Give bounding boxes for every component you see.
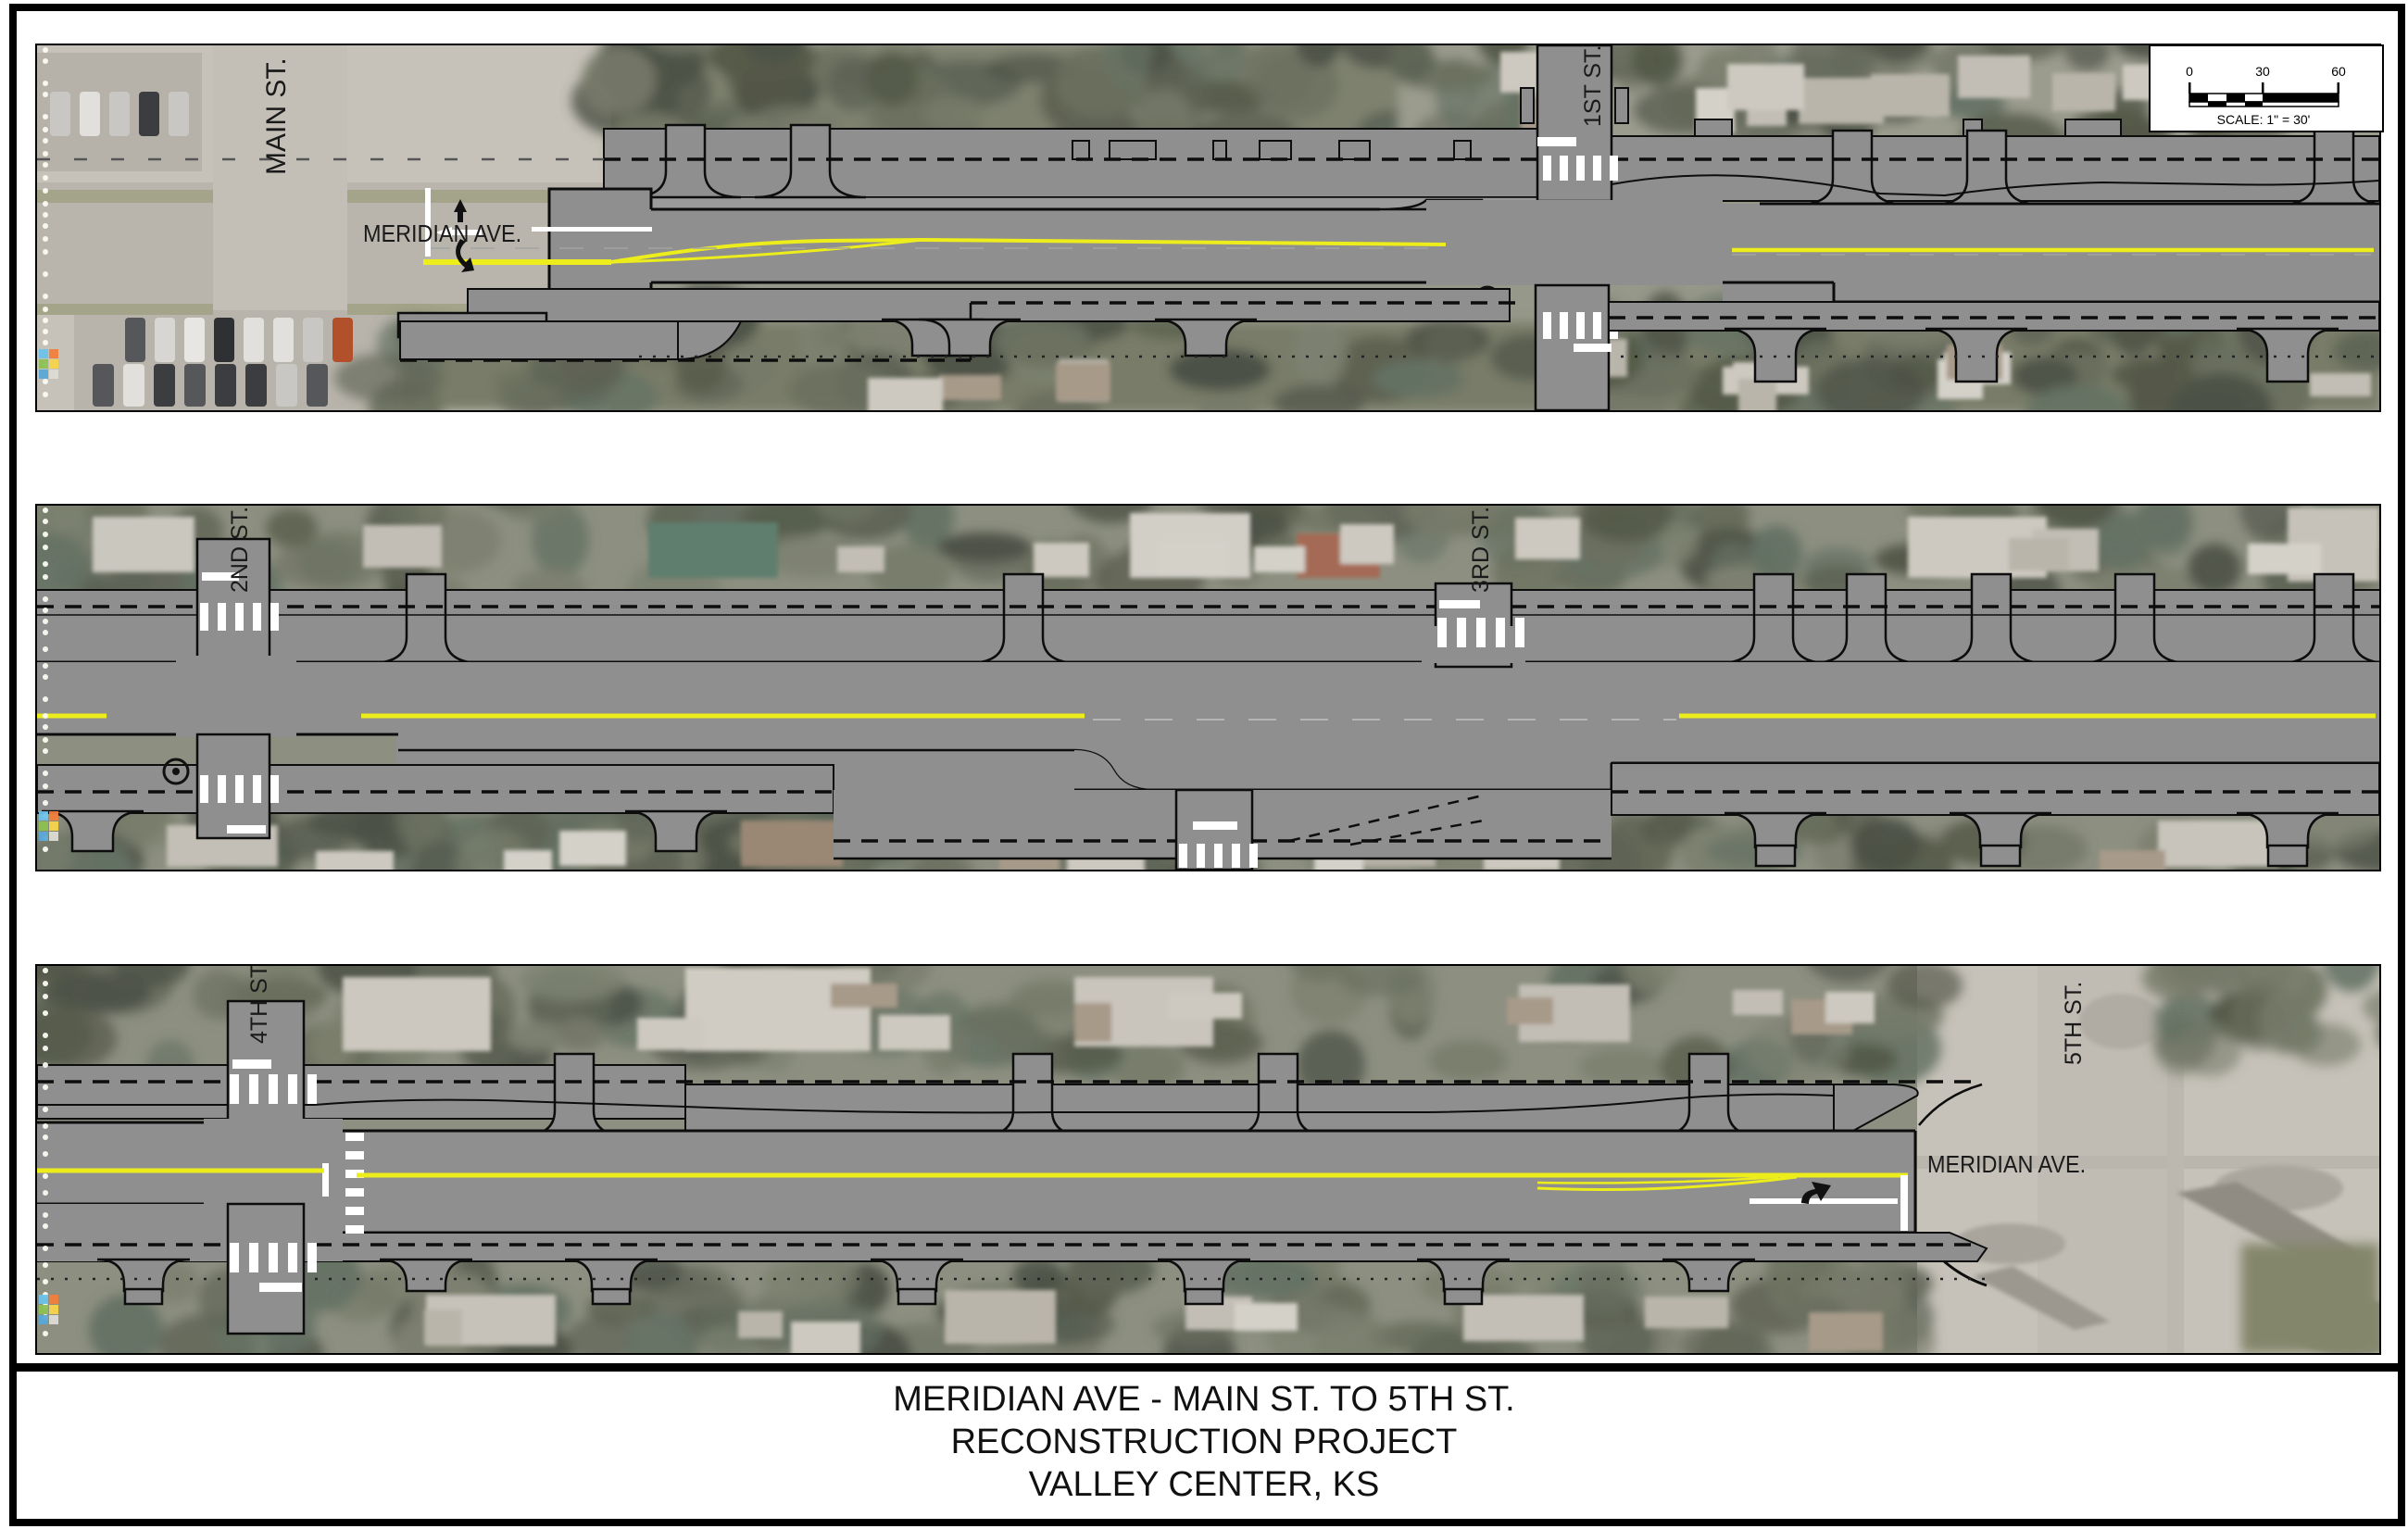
svg-text:1ST ST.: 1ST ST.	[1580, 45, 1606, 127]
svg-text:MAIN ST.: MAIN ST.	[261, 57, 292, 175]
svg-text:0: 0	[2186, 64, 2193, 79]
svg-text:30: 30	[2255, 64, 2270, 79]
svg-text:MERIDIAN AVE.: MERIDIAN AVE.	[363, 221, 521, 247]
svg-text:5TH ST.: 5TH ST.	[2061, 982, 2087, 1065]
svg-text:3RD ST.: 3RD ST.	[1468, 507, 1494, 593]
svg-text:4TH ST.: 4TH ST.	[246, 966, 272, 1044]
svg-text:60: 60	[2331, 64, 2346, 79]
svg-text:SCALE: 1" = 30': SCALE: 1" = 30'	[2217, 112, 2311, 127]
svg-text:2ND ST.: 2ND ST.	[227, 507, 253, 593]
svg-text:MERIDIAN AVE.: MERIDIAN AVE.	[1927, 1152, 2086, 1178]
